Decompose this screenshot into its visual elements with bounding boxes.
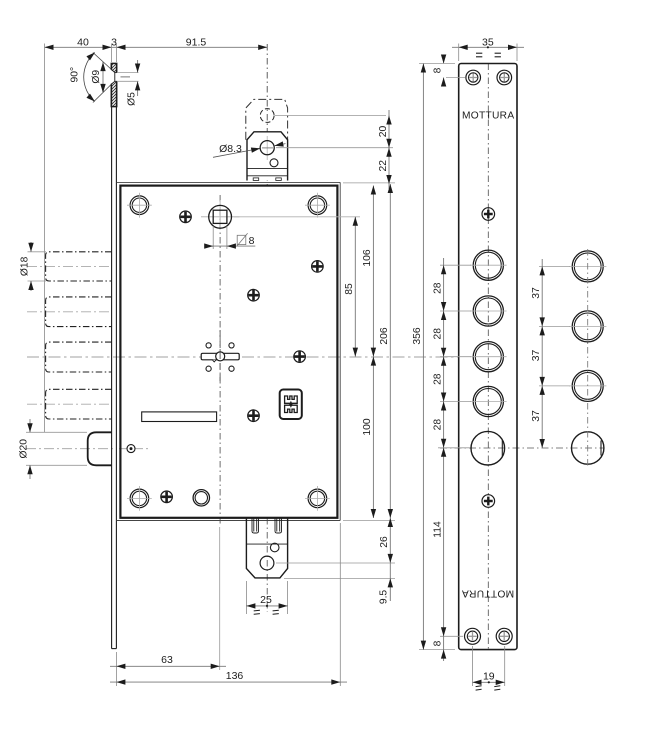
svg-text:206: 206 <box>379 327 390 344</box>
svg-text:19: 19 <box>483 671 495 683</box>
svg-text:40: 40 <box>77 37 89 49</box>
svg-text:22: 22 <box>378 160 389 172</box>
svg-text:25: 25 <box>260 594 272 606</box>
svg-text:Ø18: Ø18 <box>20 256 31 276</box>
svg-text:106: 106 <box>362 249 373 266</box>
svg-text:85: 85 <box>344 283 355 295</box>
svg-text:8: 8 <box>433 67 444 73</box>
svg-text:Ø20: Ø20 <box>19 439 30 459</box>
svg-text:Ø9: Ø9 <box>91 70 102 84</box>
svg-text:26: 26 <box>379 536 390 548</box>
svg-text:356: 356 <box>412 327 423 344</box>
svg-text:91.5: 91.5 <box>186 37 207 49</box>
svg-text:Ø5: Ø5 <box>127 92 138 106</box>
svg-text:20: 20 <box>378 126 389 138</box>
svg-text:8: 8 <box>249 235 255 247</box>
svg-text:100: 100 <box>362 418 373 435</box>
svg-text:63: 63 <box>161 654 173 666</box>
svg-text:90°: 90° <box>70 67 81 83</box>
svg-text:37: 37 <box>531 410 542 422</box>
svg-text:8: 8 <box>432 640 443 646</box>
svg-text:28: 28 <box>432 282 443 294</box>
svg-text:28: 28 <box>432 328 443 340</box>
svg-text:MOTTURA: MOTTURA <box>462 588 514 599</box>
svg-text:MOTTURA: MOTTURA <box>462 111 514 122</box>
svg-text:136: 136 <box>226 670 244 682</box>
svg-text:37: 37 <box>531 287 542 299</box>
svg-text:35: 35 <box>482 37 494 49</box>
svg-text:28: 28 <box>432 373 443 385</box>
svg-text:9.5: 9.5 <box>379 590 390 605</box>
svg-text:Ø8.3: Ø8.3 <box>219 143 242 155</box>
svg-text:37: 37 <box>531 350 542 362</box>
svg-text:28: 28 <box>432 419 443 431</box>
svg-text:114: 114 <box>432 521 443 538</box>
